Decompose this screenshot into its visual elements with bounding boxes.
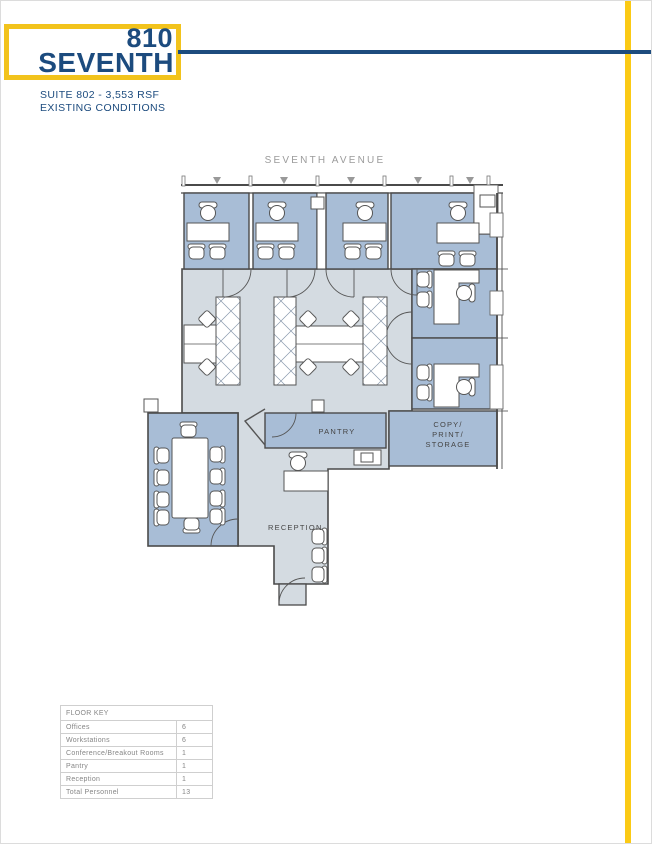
row-value: 13 (177, 786, 213, 799)
table-row: Total Personnel 13 (61, 786, 213, 799)
row-value: 6 (177, 721, 213, 734)
row-value: 1 (177, 747, 213, 760)
pantry-label: PANTRY (319, 427, 356, 436)
table-row: Reception 1 (61, 773, 213, 786)
navy-rule-line (178, 50, 652, 54)
table-row: Pantry 1 (61, 760, 213, 773)
copy-label-1: COPY/ (433, 420, 462, 429)
row-label: Reception (61, 773, 177, 786)
table-row: Workstations 6 (61, 734, 213, 747)
row-label: Conference/Breakout Rooms (61, 747, 177, 760)
row-value: 1 (177, 760, 213, 773)
floor-plan: SEVENTH AVENUE (141, 146, 516, 616)
row-value: 6 (177, 734, 213, 747)
entry-notch (279, 584, 306, 605)
logo-name: SEVENTH (38, 49, 174, 77)
building-logo: 810 SEVENTH (4, 24, 181, 80)
reception-label: RECEPTION (268, 523, 323, 532)
row-label: Workstations (61, 734, 177, 747)
row-value: 1 (177, 773, 213, 786)
column (480, 195, 495, 207)
gold-accent-line (625, 1, 631, 844)
row-label: Pantry (61, 760, 177, 773)
row-label: Total Personnel (61, 786, 177, 799)
floor-key-header: FLOOR KEY (61, 706, 213, 721)
suite-line: SUITE 802 - 3,553 RSF (40, 89, 165, 102)
copy-label-3: STORAGE (426, 440, 471, 449)
suite-subtitle: SUITE 802 - 3,553 RSF EXISTING CONDITION… (40, 89, 165, 114)
table-row: Conference/Breakout Rooms 1 (61, 747, 213, 760)
computer-icon (361, 453, 373, 462)
copy-label-2: PRINT/ (432, 430, 464, 439)
table-row: Offices 6 (61, 721, 213, 734)
row-label: Offices (61, 721, 177, 734)
facade-wall (181, 176, 503, 193)
floor-key-table: FLOOR KEY Offices 6 Workstations 6 Confe… (60, 705, 213, 799)
street-label: SEVENTH AVENUE (265, 155, 386, 166)
conditions-line: EXISTING CONDITIONS (40, 102, 165, 115)
floor-key-title: FLOOR KEY (61, 706, 213, 721)
flyer-page: 810 SEVENTH SUITE 802 - 3,553 RSF EXISTI… (0, 0, 652, 844)
